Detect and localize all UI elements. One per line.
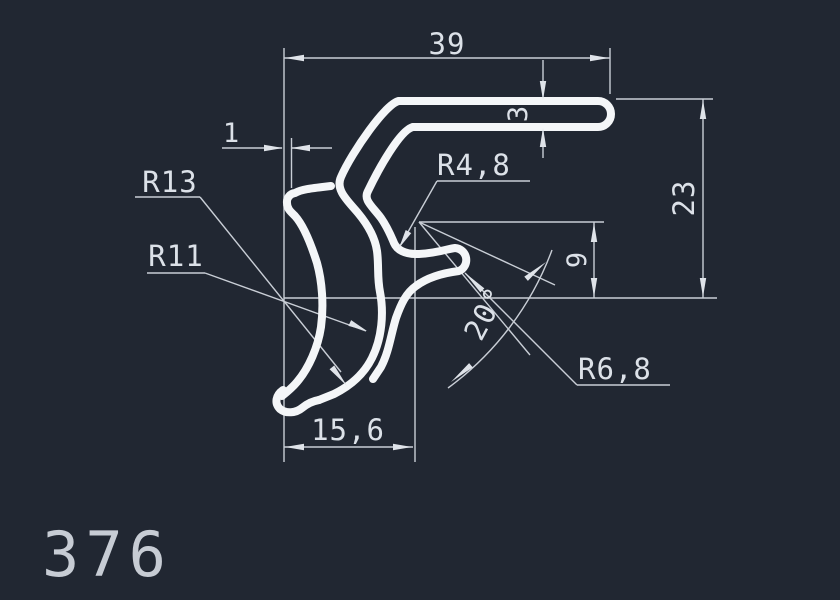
arrow-1-right <box>291 145 310 151</box>
radius-r13-label: R13 <box>142 165 197 199</box>
arrow-23-bottom <box>700 278 706 297</box>
radius-r4-8-label: R4,8 <box>437 148 511 182</box>
dim-39-label: 39 <box>429 27 466 61</box>
arrow-leader-r11 <box>348 320 368 334</box>
arrow-15-6-right <box>393 444 412 450</box>
arrow-9-top <box>591 223 597 242</box>
dim-23-label: 23 <box>667 180 701 217</box>
part-number: 376 <box>42 518 172 591</box>
leader-r11 <box>205 273 366 331</box>
arrow-23-top <box>700 100 706 119</box>
arrow-39-left <box>285 55 304 61</box>
arrow-39-right <box>590 55 609 61</box>
arrow-1-left <box>264 145 283 151</box>
profile-arm-finger <box>282 186 331 396</box>
arrow-9-bottom <box>591 278 597 297</box>
cad-drawing: 39 1 R13 R11 R4,8 R6,8 15,6 3 23 9 20° 3… <box>0 0 840 600</box>
dim-15-6-label: 15,6 <box>311 413 385 447</box>
radius-r6-8-label: R6,8 <box>578 352 652 386</box>
dim-9-label: 9 <box>562 252 593 268</box>
arrow-angle-bottom <box>449 363 473 384</box>
arrow-15-6-left <box>285 444 304 450</box>
dim-3-label: 3 <box>503 106 534 122</box>
radius-r11-label: R11 <box>148 239 203 273</box>
profile-bottom-tip <box>276 390 319 412</box>
extension-lines <box>284 48 717 462</box>
dim-1-label: 1 <box>223 118 239 149</box>
cad-drawing-canvas: 39 1 R13 R11 R4,8 R6,8 15,6 3 23 9 20° 3… <box>0 0 840 600</box>
dimension-labels: 39 1 R13 R11 R4,8 R6,8 15,6 3 23 9 20° <box>142 27 701 447</box>
